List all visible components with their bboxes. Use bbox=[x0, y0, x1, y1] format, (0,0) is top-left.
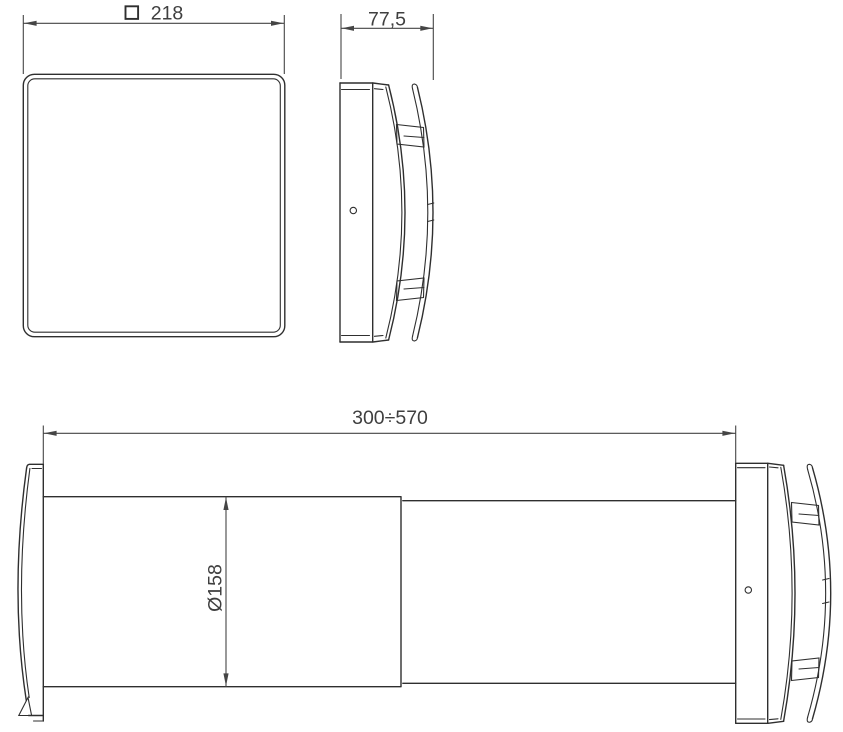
unit-cover-top-detail bbox=[770, 467, 779, 468]
dimension-width-label: 218 bbox=[151, 3, 184, 25]
unit-clip-top bbox=[792, 503, 820, 526]
side-cover-outer-curve bbox=[389, 85, 405, 340]
side-shell-top-tip bbox=[412, 84, 417, 89]
arrowhead-left bbox=[24, 21, 37, 26]
grille-drip-triangle bbox=[19, 698, 32, 716]
grille-top-edge bbox=[27, 464, 44, 468]
unit-bottom-edge bbox=[736, 721, 784, 723]
side-bottom-edge bbox=[340, 340, 389, 342]
unit-shell-top-tip bbox=[807, 464, 812, 469]
dimension-width: 218 bbox=[23, 3, 284, 74]
unit-top-edge bbox=[736, 463, 784, 465]
dimension-depth-label: 77,5 bbox=[368, 8, 406, 30]
arrowhead-left bbox=[342, 26, 354, 31]
side-cover-bottom-detail bbox=[375, 336, 384, 337]
indoor-unit bbox=[736, 463, 831, 723]
front-panel-inner-edge bbox=[28, 79, 280, 332]
arrowhead-left bbox=[44, 431, 57, 436]
arrowhead-right bbox=[420, 26, 432, 31]
dimension-diameter: Ø158 bbox=[205, 497, 229, 687]
unit-clip-bottom bbox=[792, 658, 820, 681]
side-hole bbox=[350, 207, 356, 213]
arrowhead-right bbox=[271, 21, 284, 26]
unit-cover-inner-curve bbox=[781, 467, 792, 719]
arrowhead-right bbox=[722, 431, 735, 436]
unit-shell-bottom-tip bbox=[807, 717, 812, 722]
front-view bbox=[23, 74, 285, 336]
drawing-canvas: 218 77,5 bbox=[0, 0, 843, 732]
front-panel-outer-edge bbox=[23, 74, 285, 336]
arrowhead-top bbox=[223, 497, 228, 510]
duct-inner-tube bbox=[403, 501, 736, 684]
unit-hole bbox=[745, 587, 751, 593]
section-view bbox=[18, 463, 831, 723]
side-cover-top-detail bbox=[375, 89, 384, 90]
dimension-length: 300÷570 bbox=[43, 407, 735, 464]
square-section-symbol bbox=[126, 6, 139, 19]
arrowhead-bottom bbox=[223, 673, 228, 686]
unit-shell-inner-curve bbox=[808, 469, 826, 717]
side-shell-bottom-tip bbox=[412, 336, 417, 341]
side-view bbox=[340, 83, 434, 342]
external-grille bbox=[18, 464, 43, 721]
unit-cover-bottom-detail bbox=[770, 719, 779, 720]
telescopic-duct bbox=[43, 497, 735, 687]
dimension-length-label: 300÷570 bbox=[352, 407, 428, 429]
dimension-depth: 77,5 bbox=[341, 8, 433, 80]
technical-drawing: 218 77,5 bbox=[0, 0, 843, 732]
dimension-diameter-label: Ø158 bbox=[205, 564, 227, 612]
unit-cover-outer-curve bbox=[784, 465, 795, 721]
side-top-edge bbox=[340, 83, 389, 85]
